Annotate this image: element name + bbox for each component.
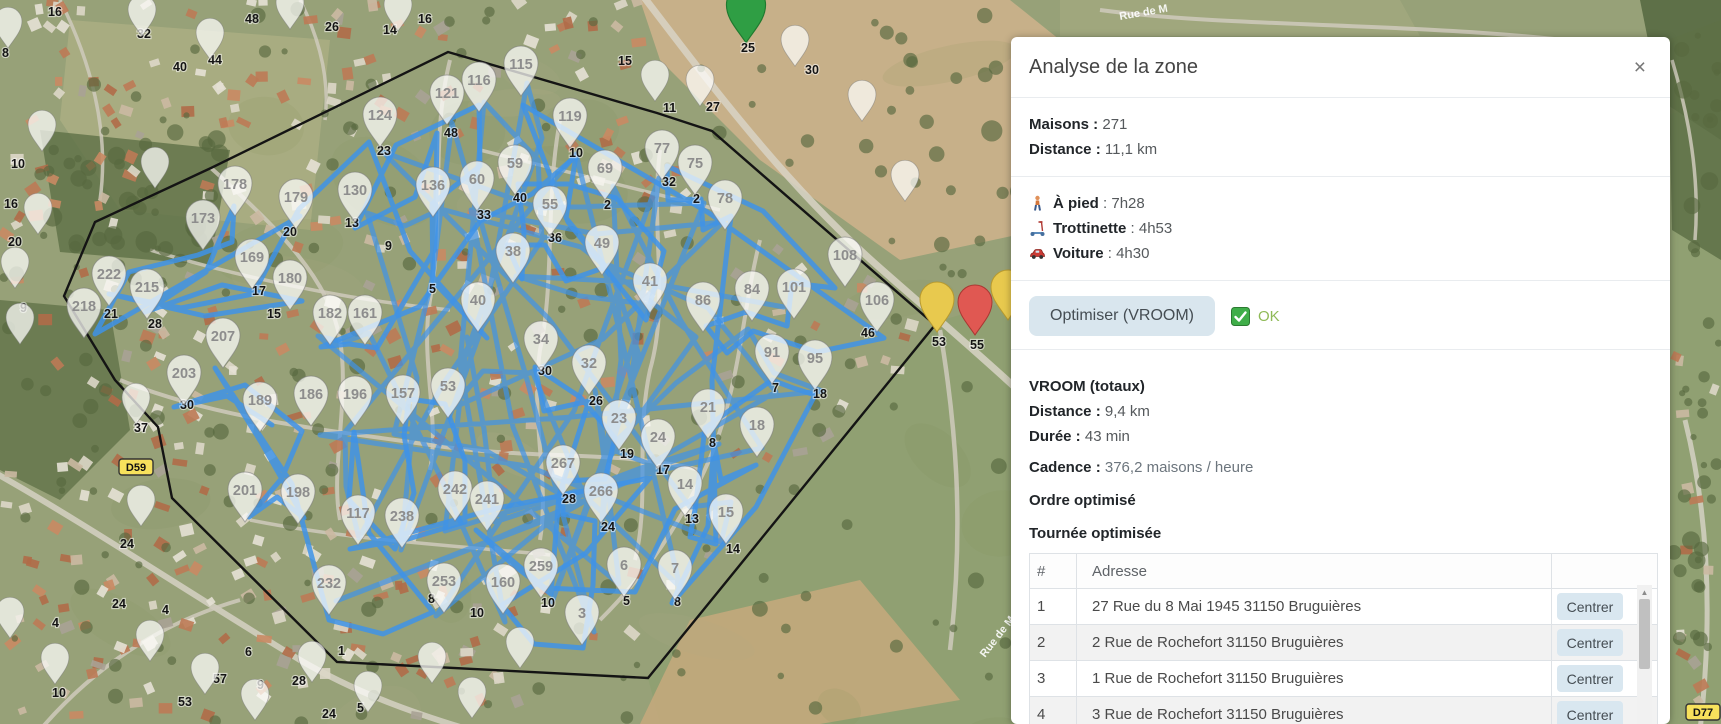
row-number: 3 bbox=[1030, 661, 1077, 697]
zone-marker-number: 119 bbox=[558, 109, 581, 125]
house-count-label: 9 bbox=[385, 239, 392, 253]
zone-marker-number: 238 bbox=[390, 509, 414, 525]
zone-marker-number: 136 bbox=[421, 178, 445, 194]
house-count-label: 21 bbox=[104, 307, 118, 321]
zone-marker-number: 86 bbox=[695, 293, 711, 309]
house-count-label: 40 bbox=[173, 60, 187, 74]
check-icon bbox=[1231, 307, 1250, 326]
zone-marker-number: 14 bbox=[677, 477, 693, 493]
stat-value: 271 bbox=[1102, 116, 1127, 133]
vroom-stat-line: Durée : 43 min bbox=[1029, 424, 1652, 449]
zone-marker-number: 34 bbox=[533, 332, 549, 348]
stat-value: 11,1 km bbox=[1105, 141, 1157, 158]
zone-marker-number: 55 bbox=[542, 197, 558, 213]
zone-marker-number: 7 bbox=[671, 561, 679, 577]
zone-marker-number: 157 bbox=[391, 386, 415, 402]
optimize-vroom-button[interactable]: Optimiser (VROOM) bbox=[1029, 296, 1215, 336]
zone-marker-number: 121 bbox=[435, 86, 459, 102]
marker-label: 25 bbox=[741, 41, 755, 55]
table-row: 127 Rue du 8 Mai 1945 31150 BruguièresCe… bbox=[1030, 589, 1658, 625]
car-icon bbox=[1029, 245, 1046, 262]
vroom-stat-line: Distance : 9,4 km bbox=[1029, 399, 1652, 424]
road-badge-label: D59 bbox=[126, 462, 146, 474]
house-count-label: 4 bbox=[52, 616, 59, 630]
row-number: 2 bbox=[1030, 625, 1077, 661]
zone-marker-number: 84 bbox=[744, 282, 760, 298]
zone-marker-number: 24 bbox=[650, 430, 666, 446]
zone-marker-number: 32 bbox=[581, 356, 597, 372]
centrer-button[interactable]: Centrer bbox=[1557, 665, 1623, 692]
col-header-adresse: Adresse bbox=[1077, 554, 1552, 589]
house-count-label: 6 bbox=[245, 645, 252, 659]
zone-marker-number: 218 bbox=[72, 299, 96, 315]
transport-label: À pied : 7h28 bbox=[1053, 191, 1145, 216]
house-count-label: 19 bbox=[620, 447, 634, 461]
scooter-icon bbox=[1029, 220, 1046, 237]
zone-marker-number: 15 bbox=[718, 505, 734, 521]
house-count-label: 48 bbox=[245, 12, 259, 26]
table-header-row: # Adresse bbox=[1030, 554, 1658, 589]
zone-marker-number: 222 bbox=[97, 267, 121, 283]
house-count-label: 11 bbox=[663, 101, 676, 115]
house-count-label: 10 bbox=[569, 146, 583, 160]
house-count-label: 10 bbox=[11, 157, 25, 171]
table-row: 31 Rue de Rochefort 31150 BruguièresCent… bbox=[1030, 661, 1658, 697]
close-icon[interactable]: × bbox=[1628, 55, 1652, 80]
zone-marker-number: 95 bbox=[807, 351, 823, 367]
stat-line: Maisons : 271 bbox=[1029, 112, 1652, 137]
transport-line: À pied : 7h28 bbox=[1029, 191, 1652, 216]
status-ok-label: OK bbox=[1258, 308, 1280, 325]
panel-header: Analyse de la zone × bbox=[1011, 37, 1670, 98]
zone-marker-number: 198 bbox=[286, 485, 310, 501]
stat-label: Durée : bbox=[1029, 428, 1081, 445]
house-count-label: 53 bbox=[178, 695, 192, 709]
centrer-button[interactable]: Centrer bbox=[1557, 629, 1623, 656]
zone-marker-number: 38 bbox=[505, 244, 521, 260]
zone-marker-number: 124 bbox=[368, 108, 392, 124]
table-scrollbar[interactable]: ▲ bbox=[1637, 585, 1652, 724]
row-number: 4 bbox=[1030, 697, 1077, 724]
zone-marker-number: 6 bbox=[620, 558, 628, 574]
house-count-label: 8 bbox=[709, 436, 716, 450]
house-count-label: 24 bbox=[120, 537, 134, 551]
house-count-label: 14 bbox=[726, 542, 740, 556]
house-count-label: 1 bbox=[338, 644, 345, 658]
zone-marker-number: 242 bbox=[443, 482, 467, 498]
terrain-patch bbox=[1060, 0, 1420, 36]
zone-marker-number: 18 bbox=[749, 418, 765, 434]
house-count-label: 10 bbox=[541, 596, 555, 610]
zone-marker-number: 75 bbox=[687, 156, 703, 172]
stat-value: 43 min bbox=[1085, 428, 1130, 445]
zone-marker-number: 259 bbox=[529, 559, 553, 575]
scrollbar-up-icon[interactable]: ▲ bbox=[1637, 585, 1652, 599]
zone-marker-number: 232 bbox=[317, 576, 341, 592]
row-address: 2 Rue de Rochefort 31150 Bruguières bbox=[1077, 625, 1552, 661]
zone-marker-number: 160 bbox=[491, 575, 515, 591]
zone-marker-number: 3 bbox=[578, 606, 586, 622]
zone-marker-number: 49 bbox=[594, 236, 610, 252]
house-count-label: 48 bbox=[444, 126, 458, 140]
house-count-label: 26 bbox=[325, 20, 339, 34]
zone-marker-number: 77 bbox=[654, 141, 670, 157]
stat-value: 9,4 km bbox=[1105, 403, 1150, 420]
house-count-label: 13 bbox=[685, 512, 699, 526]
zone-stats-section: Maisons : 271Distance : 11,1 km bbox=[1011, 98, 1670, 177]
stat-line: Distance : 11,1 km bbox=[1029, 137, 1652, 162]
row-address: 3 Rue de Rochefort 31150 Bruguières bbox=[1077, 697, 1552, 724]
vroom-totals-heading: VROOM (totaux) bbox=[1029, 374, 1652, 399]
house-count-label: 10 bbox=[52, 686, 66, 700]
stat-label: Distance : bbox=[1029, 403, 1101, 420]
transport-label: Voiture : 4h30 bbox=[1053, 241, 1149, 266]
scrollbar-thumb[interactable] bbox=[1639, 599, 1650, 669]
zone-marker-number: 117 bbox=[346, 506, 369, 522]
house-count-label: 24 bbox=[112, 597, 126, 611]
zone-marker-number: 201 bbox=[233, 483, 257, 499]
cadence-value: 376,2 maisons / heure bbox=[1105, 459, 1253, 476]
zone-marker-number: 169 bbox=[240, 250, 264, 266]
house-count-label: 26 bbox=[589, 394, 603, 408]
zone-marker-number: 180 bbox=[278, 271, 302, 287]
vroom-totals-section: VROOM (totaux) Distance : 9,4 kmDurée : … bbox=[1011, 350, 1670, 724]
house-count-label: 46 bbox=[861, 326, 875, 340]
zone-marker-number: 40 bbox=[470, 293, 486, 309]
zone-marker-number: 173 bbox=[191, 211, 215, 227]
house-count-label: 4 bbox=[162, 603, 169, 617]
zone-marker-number: 253 bbox=[432, 574, 456, 590]
centrer-button[interactable]: Centrer bbox=[1557, 593, 1623, 620]
stat-label: Distance : bbox=[1029, 141, 1101, 158]
road-badge-label: D77 bbox=[1693, 707, 1713, 719]
zone-marker-number: 69 bbox=[597, 161, 613, 177]
cadence-label: Cadence : bbox=[1029, 459, 1101, 476]
marker-label: 53 bbox=[932, 335, 946, 349]
house-count-label: 15 bbox=[267, 307, 281, 321]
col-header-num: # bbox=[1030, 554, 1077, 589]
transport-line: Trottinette : 4h53 bbox=[1029, 216, 1652, 241]
zone-marker-number: 21 bbox=[700, 400, 716, 416]
house-count-label: 5 bbox=[429, 282, 436, 296]
zone-analysis-panel: Analyse de la zone × Maisons : 271Distan… bbox=[1011, 37, 1670, 724]
tournee-optimisee-heading: Tournée optimisée bbox=[1029, 521, 1652, 546]
zone-marker-number: 161 bbox=[353, 306, 377, 322]
zone-marker-number: 189 bbox=[248, 393, 272, 409]
marker-label: 55 bbox=[970, 338, 984, 352]
zone-marker-number: 59 bbox=[507, 156, 523, 172]
zone-marker-number: 23 bbox=[611, 411, 627, 427]
zone-marker-number: 91 bbox=[764, 345, 780, 361]
row-number: 1 bbox=[1030, 589, 1077, 625]
house-count-label: 16 bbox=[418, 12, 432, 26]
optimized-route-table: # Adresse 127 Rue du 8 Mai 1945 31150 Br… bbox=[1029, 553, 1658, 724]
house-count-label: 30 bbox=[805, 63, 819, 77]
row-address: 1 Rue de Rochefort 31150 Bruguières bbox=[1077, 661, 1552, 697]
zone-marker-number: 186 bbox=[299, 387, 323, 403]
zone-marker-number: 207 bbox=[211, 329, 235, 345]
panel-title: Analyse de la zone bbox=[1029, 56, 1198, 79]
transport-times-section: À pied : 7h28Trottinette : 4h53Voiture :… bbox=[1011, 177, 1670, 281]
house-count-label: 15 bbox=[618, 54, 632, 68]
house-count-label: 10 bbox=[470, 606, 484, 620]
zone-marker-number: 215 bbox=[135, 280, 159, 296]
walk-icon bbox=[1029, 195, 1046, 212]
table-row: 43 Rue de Rochefort 31150 BruguièresCent… bbox=[1030, 697, 1658, 724]
zone-marker-number: 267 bbox=[551, 456, 575, 472]
zone-marker-number: 108 bbox=[833, 248, 857, 264]
house-count-label: 16 bbox=[48, 5, 62, 19]
zone-marker-number: 266 bbox=[589, 484, 613, 500]
zone-marker-number: 178 bbox=[223, 177, 247, 193]
zone-marker-number: 196 bbox=[343, 387, 367, 403]
zone-marker-number: 203 bbox=[172, 366, 196, 382]
zone-marker-number: 116 bbox=[467, 73, 490, 89]
house-count-label: 33 bbox=[477, 208, 491, 222]
col-header-action bbox=[1552, 554, 1658, 589]
app-window: Rue de MRue de M163248404416148264823151… bbox=[0, 0, 1721, 724]
cadence-line: Cadence : 376,2 maisons / heure bbox=[1029, 455, 1652, 480]
house-count-label: 27 bbox=[706, 100, 720, 114]
zone-marker-number: 182 bbox=[318, 306, 342, 322]
vroom-status: OK bbox=[1231, 307, 1280, 326]
zone-marker-number: 130 bbox=[343, 183, 367, 199]
house-count-label: 16 bbox=[4, 197, 18, 211]
centrer-button[interactable]: Centrer bbox=[1557, 701, 1623, 724]
ordre-optimise-heading: Ordre optimisé bbox=[1029, 488, 1652, 513]
transport-label: Trottinette : 4h53 bbox=[1053, 216, 1172, 241]
optimize-row: Optimiser (VROOM) OK bbox=[1011, 281, 1670, 350]
zone-marker-number: 41 bbox=[642, 274, 658, 290]
table-row: 22 Rue de Rochefort 31150 BruguièresCent… bbox=[1030, 625, 1658, 661]
zone-marker-number: 179 bbox=[284, 190, 308, 206]
zone-marker-number: 60 bbox=[469, 172, 485, 188]
zone-marker-number: 53 bbox=[440, 379, 456, 395]
row-address: 27 Rue du 8 Mai 1945 31150 Bruguières bbox=[1077, 589, 1552, 625]
zone-marker-number: 241 bbox=[475, 492, 499, 508]
zone-marker-number: 101 bbox=[782, 280, 806, 296]
zone-marker-number: 115 bbox=[509, 57, 532, 73]
house-count-label: 28 bbox=[292, 674, 306, 688]
zone-marker-number: 78 bbox=[717, 191, 733, 207]
house-count-label: 24 bbox=[322, 707, 336, 721]
stat-label: Maisons : bbox=[1029, 116, 1098, 133]
house-count-label: 24 bbox=[601, 520, 615, 534]
transport-line: Voiture : 4h30 bbox=[1029, 241, 1652, 266]
house-count-label: 28 bbox=[148, 317, 162, 331]
zone-marker-number: 106 bbox=[865, 293, 889, 309]
